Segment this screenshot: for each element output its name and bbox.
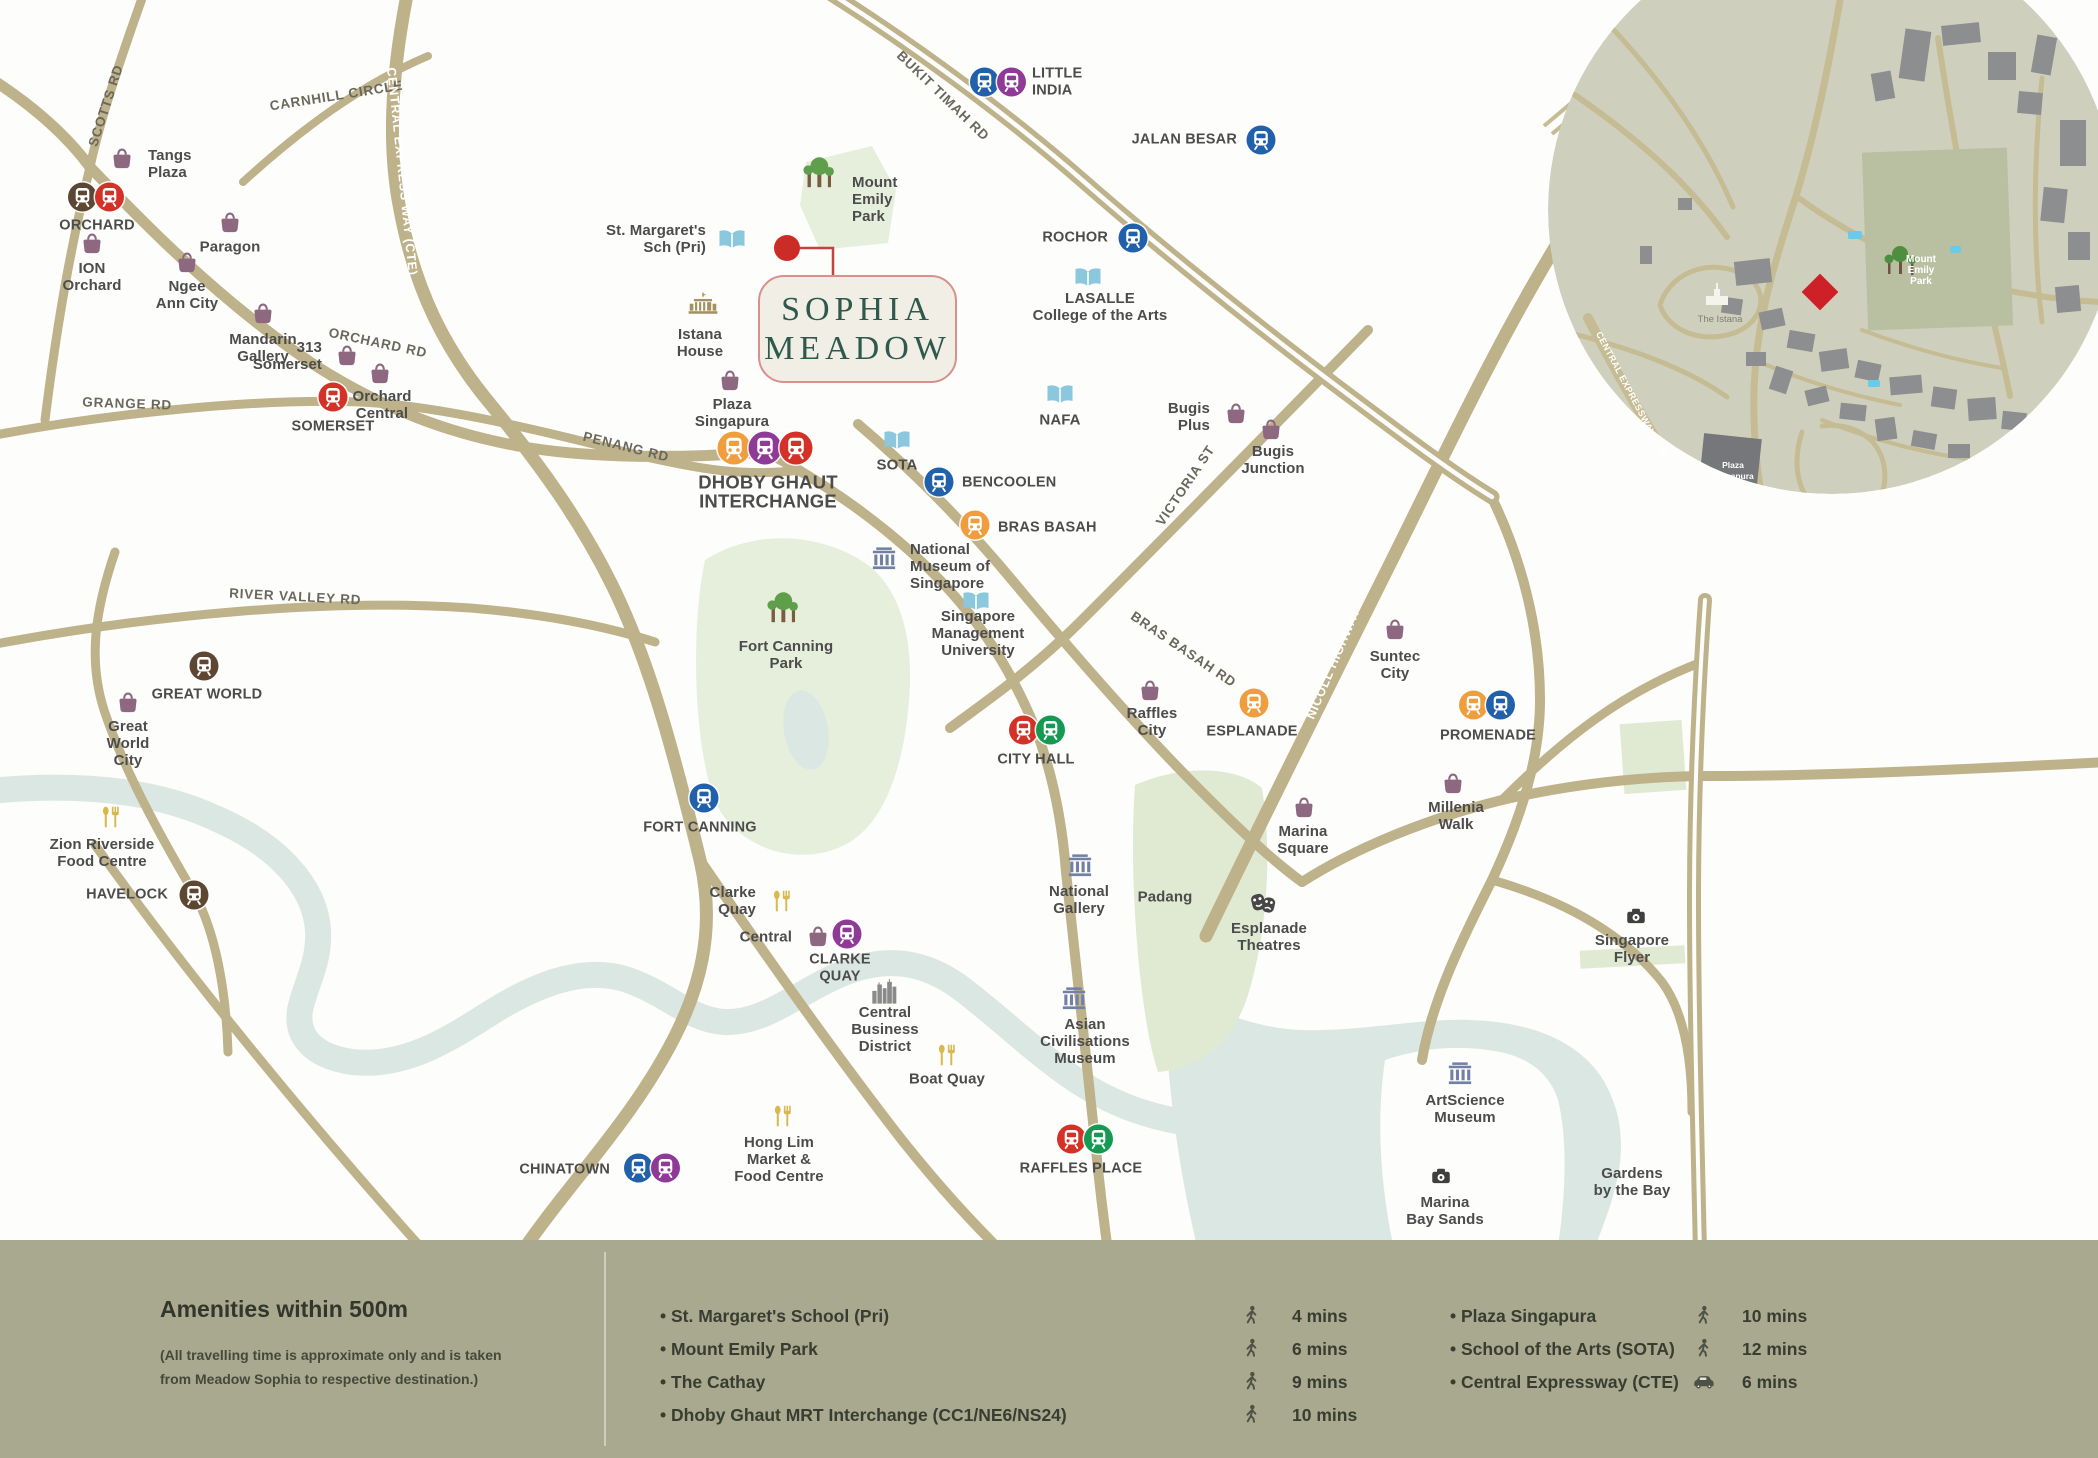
place-label: Asian Civilisations Museum (1040, 1017, 1130, 1067)
amenity-name: Central Expressway (CTE) (1450, 1372, 1679, 1393)
place-label: Paragon (200, 240, 261, 257)
place-label: Hong Lim Market & Food Centre (734, 1135, 823, 1185)
station-circles (970, 68, 1024, 97)
mrt-line-te-icon (190, 652, 219, 681)
amenity-right-item: Plaza Singapura10 mins (1450, 1300, 2030, 1333)
food-icon (767, 1102, 797, 1132)
amenity-left-item: Mount Emily Park6 mins (660, 1333, 1440, 1366)
mrt-line-ew-icon (1036, 716, 1065, 745)
amenity-right-item: School of the Arts (SOTA)12 mins (1450, 1333, 2030, 1366)
mrt-line-ne-icon (997, 68, 1026, 97)
place-label: Great World City (107, 719, 150, 769)
amenities-list-right: Plaza Singapura10 minsSchool of the Arts… (1450, 1300, 2030, 1399)
bag-icon (1223, 400, 1250, 427)
station-circles (190, 652, 217, 681)
mrt-line-ew-icon (1084, 1125, 1113, 1154)
station-circles (1459, 691, 1513, 720)
food-icon (766, 887, 796, 917)
place-label: Zion Riverside Food Centre (50, 837, 155, 871)
station-circles (833, 920, 860, 949)
place-label: St. Margaret's Sch (Pri) (606, 223, 706, 257)
mrt-line-dt-icon (1486, 691, 1515, 720)
bag-icon (109, 145, 136, 172)
bag-icon (717, 367, 744, 394)
amenities-note: (All travelling time is approximate only… (160, 1344, 502, 1392)
place-label: National Gallery (1049, 884, 1109, 918)
mrt-line-te-icon (180, 881, 209, 910)
amenity-time: 6 mins (1292, 1339, 1347, 1360)
bag-icon (334, 342, 361, 369)
mrt-line-cc-icon (1459, 691, 1488, 720)
mrt-line-ne-icon (833, 920, 862, 949)
place-label: Gardens by the Bay (1594, 1166, 1671, 1200)
station-circles (718, 432, 811, 465)
station-label: GREAT WORLD (152, 687, 263, 704)
place-label: Plaza Singapura (695, 397, 769, 431)
place-label: Bugis Junction (1241, 444, 1304, 478)
bag-icon (115, 689, 142, 716)
mrt-line-ns-icon (780, 432, 813, 465)
walk-icon (1238, 1402, 1265, 1429)
bag-icon (805, 923, 832, 950)
place-label: Boat Quay (909, 1072, 985, 1089)
amenity-right-item: Central Expressway (CTE)6 mins (1450, 1366, 2030, 1399)
station-label: FORT CANNING (643, 820, 757, 837)
mrt-line-cc-icon (718, 432, 751, 465)
station-circles (319, 383, 346, 412)
station-circles (1009, 716, 1063, 745)
mrt-line-ne-icon (651, 1154, 680, 1183)
station-label: HAVELOCK (86, 887, 168, 904)
station-circles (180, 881, 207, 910)
place-label: Suntec City (1370, 649, 1421, 683)
museum-icon (1065, 852, 1096, 883)
station-label: RAFFLES PLACE (1020, 1161, 1143, 1178)
station-circles (961, 511, 988, 540)
walk-icon (1238, 1336, 1265, 1363)
amenity-name: Mount Emily Park (660, 1339, 818, 1360)
food-icon (95, 803, 125, 833)
mrt-line-cc-icon (961, 511, 990, 540)
place-label: Clarke Quay (710, 885, 756, 919)
amenity-left-item: The Cathay9 mins (660, 1366, 1440, 1399)
place-label: Central (740, 930, 792, 947)
bag-icon (1382, 616, 1409, 643)
station-circles (925, 468, 952, 497)
place-label: NAFA (1039, 413, 1080, 430)
station-label: PROMENADE (1440, 728, 1536, 745)
place-label: Millenia Walk (1428, 800, 1484, 834)
station-label: SOMERSET (292, 419, 375, 436)
station-circles (1247, 126, 1274, 155)
walk-icon (1238, 1303, 1265, 1330)
place-label: Singapore Management University (932, 609, 1025, 659)
museum-icon (1059, 985, 1090, 1016)
amenity-time: 10 mins (1292, 1405, 1357, 1426)
station-circles (68, 183, 122, 212)
mrt-line-ns-icon (319, 383, 348, 412)
project-name-box: SOPHIA MEADOW (758, 275, 957, 383)
trees-icon (763, 592, 805, 634)
place-label: ArtScience Museum (1425, 1093, 1504, 1127)
station-label: CITY HALL (997, 752, 1074, 769)
place-label: Raffles City (1127, 706, 1178, 740)
mrt-line-dt-icon (1119, 224, 1148, 253)
mrt-line-ns-icon (1009, 716, 1038, 745)
amenity-name: The Cathay (660, 1372, 765, 1393)
mrt-line-cc-icon (1240, 689, 1269, 718)
amenity-time: 9 mins (1292, 1372, 1347, 1393)
station-label: CLARKE QUAY (809, 951, 871, 984)
food-icon (931, 1041, 961, 1071)
amenities-list-left: St. Margaret's School (Pri)4 minsMount E… (660, 1300, 1440, 1432)
place-label: ION Orchard (62, 261, 121, 295)
car-icon (1690, 1369, 1717, 1396)
place-label: Fort Canning Park (739, 639, 834, 673)
masks-icon (1247, 888, 1279, 920)
station-label: DHOBY GHAUT INTERCHANGE (698, 473, 838, 512)
mrt-line-ns-icon (95, 183, 124, 212)
trees-icon (799, 157, 841, 199)
book-icon (716, 224, 748, 256)
book-icon (1044, 379, 1076, 411)
book-icon (1072, 262, 1104, 294)
bag-icon (1291, 794, 1318, 821)
project-name-line1: SOPHIA (781, 290, 934, 329)
station-label: BENCOOLEN (962, 475, 1056, 492)
place-label: Singapore Flyer (1595, 933, 1669, 967)
station-circles (1240, 689, 1267, 718)
place-label: Central Business District (851, 1005, 919, 1055)
station-circles (690, 784, 717, 813)
camera-icon (1622, 903, 1650, 931)
bag-icon (1258, 416, 1285, 443)
panel-divider (604, 1252, 606, 1446)
place-label: National Museum of Singapore (910, 542, 990, 592)
amenity-name: St. Margaret's School (Pri) (660, 1306, 889, 1327)
project-name-line2: MEADOW (764, 329, 951, 368)
bag-icon (250, 300, 277, 327)
station-label: CHINATOWN (519, 1162, 610, 1179)
place-label: LASALLE College of the Arts (1033, 291, 1168, 325)
mrt-line-ns-icon (1057, 1125, 1086, 1154)
palace-icon (686, 291, 720, 325)
bag-icon (217, 209, 244, 236)
station-circles (1057, 1125, 1111, 1154)
walk-icon (1238, 1369, 1265, 1396)
place-label: Padang (1138, 890, 1193, 907)
amenity-left-item: Dhoby Ghaut MRT Interchange (CC1/NE6/NS2… (660, 1399, 1440, 1432)
amenity-time: 12 mins (1742, 1339, 1807, 1360)
bag-icon (1440, 770, 1467, 797)
mrt-line-dt-icon (970, 68, 999, 97)
station-label: BRAS BASAH (998, 520, 1097, 537)
mrt-line-dt-icon (690, 784, 719, 813)
singapore-location-map: SCOTTS RDCARNHILL CIRCLECENTRAL EXPRESS … (0, 0, 2098, 1458)
place-label: Marina Bay Sands (1406, 1195, 1484, 1229)
amenities-heading: Amenities within 500m (160, 1296, 408, 1323)
book-icon (881, 425, 913, 457)
mrt-line-dt-icon (925, 468, 954, 497)
place-label: Mount Emily Park (852, 175, 897, 225)
bag-icon (367, 360, 394, 387)
walk-icon (1690, 1336, 1717, 1363)
mrt-line-dt-icon (624, 1154, 653, 1183)
museum-icon (1445, 1060, 1476, 1091)
place-label: Tangs Plaza (148, 148, 192, 182)
amenity-time: 10 mins (1742, 1306, 1807, 1327)
amenity-name: Plaza Singapura (1450, 1306, 1596, 1327)
station-label: ORCHARD (59, 218, 135, 235)
amenity-name: Dhoby Ghaut MRT Interchange (CC1/NE6/NS2… (660, 1405, 1067, 1426)
bag-icon (174, 249, 201, 276)
amenity-left-item: St. Margaret's School (Pri)4 mins (660, 1300, 1440, 1333)
walk-icon (1690, 1303, 1717, 1330)
amenities-note-line1: (All travelling time is approximate only… (160, 1344, 502, 1368)
amenity-time: 4 mins (1292, 1306, 1347, 1327)
mrt-line-te-icon (68, 183, 97, 212)
place-label: SOTA (877, 458, 918, 475)
mrt-line-dt-icon (1247, 126, 1276, 155)
place-label: 313 Somerset (253, 340, 322, 374)
museum-icon (869, 545, 900, 576)
bag-icon (1137, 677, 1164, 704)
station-label: LITTLE INDIA (1032, 65, 1082, 98)
mrt-line-ne-icon (749, 432, 782, 465)
amenity-time: 6 mins (1742, 1372, 1797, 1393)
place-label: Istana House (677, 327, 723, 361)
amenities-note-line2: from Meadow Sophia to respective destina… (160, 1368, 502, 1392)
station-circles (624, 1154, 678, 1183)
amenity-name: School of the Arts (SOTA) (1450, 1339, 1675, 1360)
place-label: Marina Square (1277, 824, 1328, 858)
station-circles (1119, 224, 1146, 253)
place-label: Ngee Ann City (156, 279, 218, 313)
station-label: ROCHOR (1042, 230, 1108, 247)
place-label: Esplanade Theatres (1231, 921, 1307, 955)
station-label: JALAN BESAR (1132, 132, 1237, 149)
station-label: ESPLANADE (1206, 724, 1297, 741)
place-label: Bugis Plus (1168, 401, 1210, 435)
camera-icon (1427, 1163, 1455, 1191)
